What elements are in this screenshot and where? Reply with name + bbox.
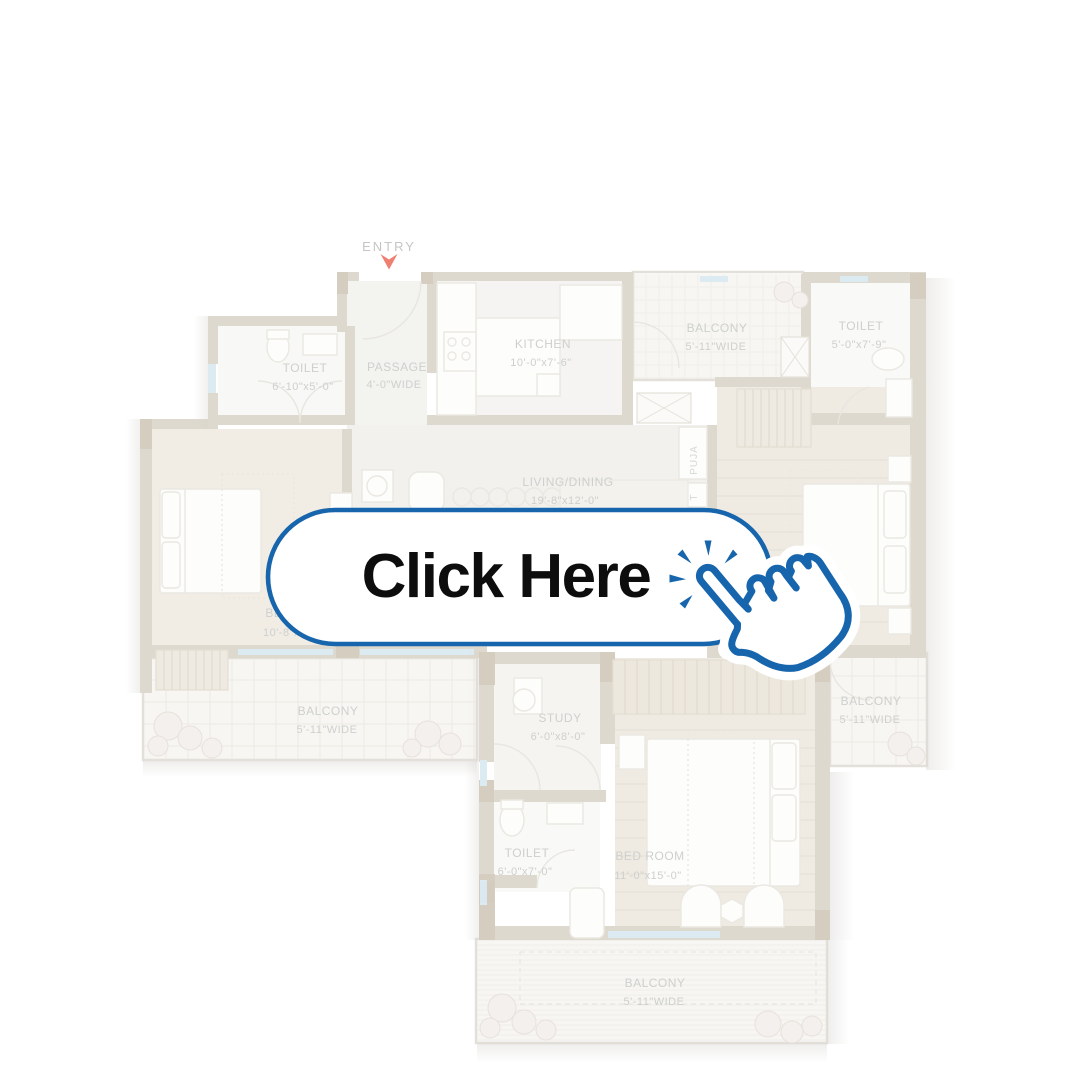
svg-text:5'-11"WIDE: 5'-11"WIDE (840, 714, 901, 726)
svg-text:LIVING/DINING: LIVING/DINING (522, 475, 613, 489)
svg-text:5'-11"WIDE: 5'-11"WIDE (297, 724, 358, 736)
svg-text:BALCONY: BALCONY (298, 704, 359, 718)
svg-text:PUJA: PUJA (689, 445, 700, 475)
svg-text:TOILET: TOILET (283, 361, 328, 375)
svg-text:5'-11"WIDE: 5'-11"WIDE (624, 996, 685, 1008)
svg-text:19'-8"x12'-0": 19'-8"x12'-0" (531, 495, 599, 507)
svg-text:Click Here: Click Here (362, 542, 651, 611)
svg-text:4'-0"WIDE: 4'-0"WIDE (366, 379, 421, 391)
svg-text:BALCONY: BALCONY (841, 694, 902, 708)
svg-text:6'-0"x7'-0": 6'-0"x7'-0" (498, 866, 553, 878)
svg-text:ENTRY: ENTRY (362, 239, 416, 254)
svg-text:KITCHEN: KITCHEN (515, 337, 571, 351)
svg-text:11'-0"x15'-0": 11'-0"x15'-0" (614, 870, 681, 882)
svg-text:TOILET: TOILET (839, 319, 884, 333)
svg-text:BED ROOM: BED ROOM (615, 849, 684, 863)
svg-text:BALCONY: BALCONY (625, 976, 686, 990)
svg-text:TOILET: TOILET (505, 846, 550, 860)
svg-text:6'-0"x8'-0": 6'-0"x8'-0" (531, 731, 586, 743)
svg-text:5'-0"x7'-9": 5'-0"x7'-9" (832, 339, 887, 351)
svg-text:10'-0"x7'-6": 10'-0"x7'-6" (510, 357, 571, 369)
svg-text:T: T (689, 493, 700, 500)
svg-text:STUDY: STUDY (538, 711, 581, 725)
svg-text:6'-10"x5'-0": 6'-10"x5'-0" (272, 381, 333, 393)
svg-text:5'-11"WIDE: 5'-11"WIDE (686, 341, 747, 353)
svg-text:BALCONY: BALCONY (687, 321, 748, 335)
svg-text:PASSAGE: PASSAGE (367, 360, 427, 374)
